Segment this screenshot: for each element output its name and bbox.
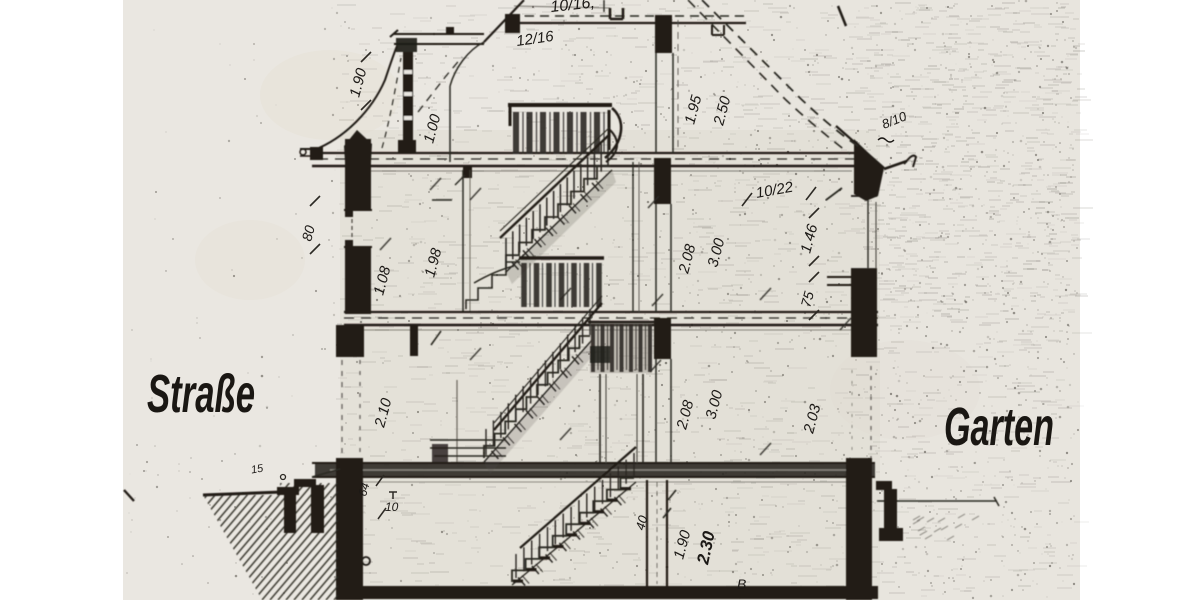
svg-text:Garten: Garten <box>944 397 1054 457</box>
svg-text:10: 10 <box>385 500 399 514</box>
svg-text:B: B <box>737 576 746 592</box>
svg-text:Straße: Straße <box>147 364 255 424</box>
